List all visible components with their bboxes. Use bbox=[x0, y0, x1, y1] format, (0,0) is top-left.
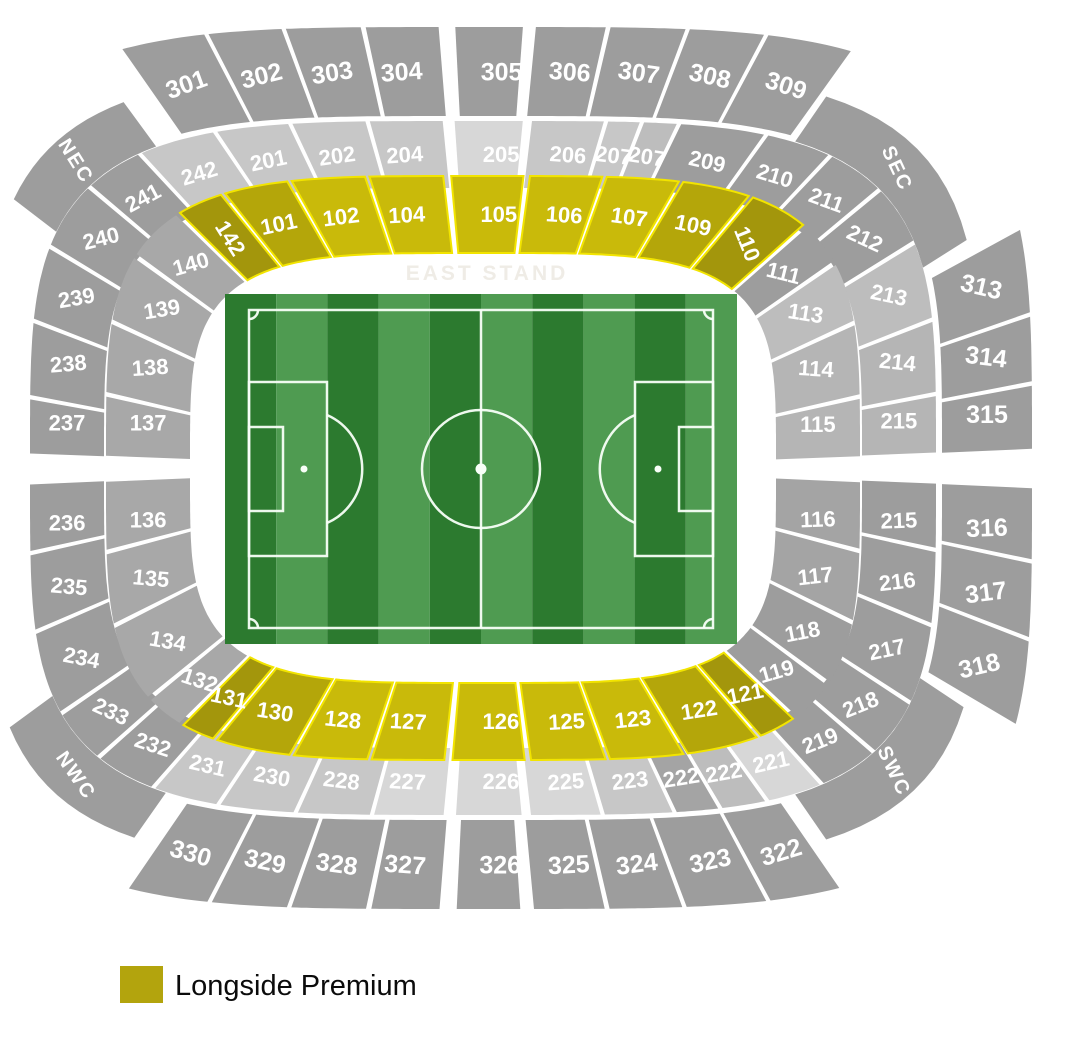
section-326-19[interactable] bbox=[457, 820, 521, 909]
section-237-63[interactable] bbox=[30, 399, 104, 456]
section-215-42[interactable] bbox=[862, 396, 936, 455]
stadium-seat-map: 3013023033043053063073083093133143153163… bbox=[0, 0, 1089, 1051]
stadium-svg: 3013023033043053063073083093133143153163… bbox=[0, 0, 1089, 1051]
east-stand-label: EAST STAND bbox=[406, 262, 569, 285]
section-236-62[interactable] bbox=[30, 481, 104, 551]
section-327-20[interactable] bbox=[371, 820, 446, 909]
pitch-stripe bbox=[327, 294, 378, 644]
pitch-stripe bbox=[583, 294, 634, 644]
pitch-stripe bbox=[481, 294, 532, 644]
penalty-spot bbox=[301, 466, 308, 473]
pitch-stripe bbox=[225, 294, 276, 644]
section-105-72[interactable] bbox=[451, 176, 523, 253]
center-spot bbox=[476, 464, 487, 475]
section-215-43[interactable] bbox=[862, 481, 936, 548]
pitch-stripe bbox=[430, 294, 481, 644]
pitch-stripe bbox=[686, 294, 737, 644]
legend-swatch bbox=[120, 966, 163, 1003]
section-304-3[interactable] bbox=[366, 27, 446, 116]
penalty-spot bbox=[655, 466, 662, 473]
section-126-89[interactable] bbox=[453, 683, 525, 760]
legend: Longside Premium bbox=[120, 966, 417, 1003]
legend-label: Longside Premium bbox=[175, 970, 417, 1002]
pitch bbox=[225, 294, 737, 644]
section-305-4[interactable] bbox=[455, 27, 523, 116]
